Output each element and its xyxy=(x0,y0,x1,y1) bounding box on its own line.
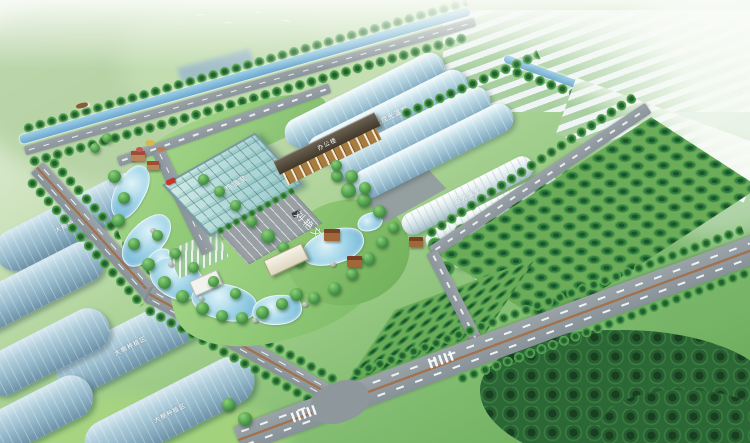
rock xyxy=(330,262,336,267)
tree xyxy=(290,288,303,301)
thatched-hut xyxy=(347,256,362,267)
tree xyxy=(128,238,140,250)
tree xyxy=(341,183,356,198)
rock xyxy=(252,318,258,323)
tree xyxy=(118,192,130,204)
tree xyxy=(112,214,125,227)
tree xyxy=(208,276,219,287)
tree xyxy=(373,205,386,218)
tree xyxy=(331,160,342,171)
tree xyxy=(246,216,257,227)
tree xyxy=(188,262,199,273)
tree xyxy=(214,186,225,197)
rock xyxy=(198,296,204,301)
tree xyxy=(222,398,235,411)
tree xyxy=(359,182,371,194)
tree xyxy=(261,229,275,243)
tree xyxy=(328,282,341,295)
tree xyxy=(236,312,248,324)
tree xyxy=(176,290,189,303)
cottage xyxy=(131,151,145,161)
tree xyxy=(196,302,209,315)
thatched-hut xyxy=(409,237,423,247)
tree xyxy=(276,298,288,310)
tree xyxy=(376,236,388,248)
tree xyxy=(216,310,228,322)
tree xyxy=(308,292,320,304)
tree xyxy=(198,174,209,185)
tree xyxy=(388,222,399,233)
tree xyxy=(230,200,241,211)
tree xyxy=(256,306,269,319)
tree xyxy=(331,170,343,182)
site-plan-rendering: 大棚种植区 大棚种植区 大棚种植区 连栋温室 文化观光温室 xyxy=(0,0,750,443)
tree xyxy=(158,276,171,289)
tree xyxy=(238,412,252,426)
rock xyxy=(168,262,174,267)
haze-overlay xyxy=(0,0,750,70)
tree xyxy=(90,143,100,153)
tree xyxy=(102,133,112,143)
rock xyxy=(302,302,308,307)
tree xyxy=(346,268,358,280)
tree xyxy=(108,170,121,183)
tree xyxy=(152,230,163,241)
flower-bed xyxy=(136,147,143,152)
tree xyxy=(362,252,375,265)
tree xyxy=(345,170,358,183)
tree xyxy=(230,288,241,299)
tree xyxy=(170,248,181,259)
tree xyxy=(142,258,155,271)
tree xyxy=(357,193,371,207)
flower-bed xyxy=(145,140,155,146)
cottage xyxy=(147,161,159,170)
flower-bed xyxy=(157,147,165,152)
